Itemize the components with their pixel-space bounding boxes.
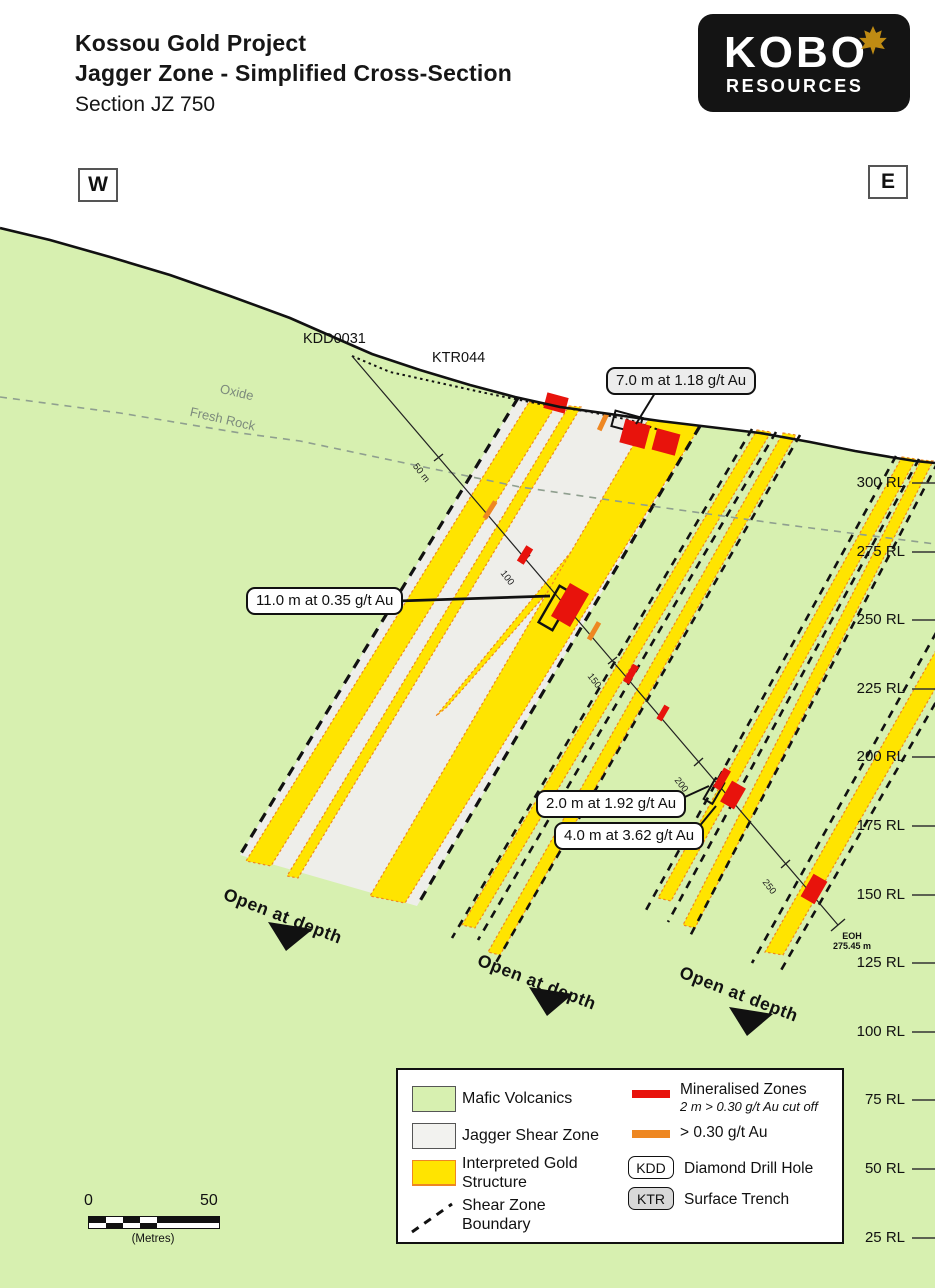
legend-swatch-shear	[412, 1123, 456, 1149]
rl-label: 50 RL	[835, 1160, 905, 1177]
legend-label: Surface Trench	[684, 1190, 789, 1209]
legend-label: > 0.30 g/t Au	[680, 1123, 767, 1142]
legend-dashed-line-icon	[408, 1196, 458, 1238]
assay-callout-2m: 2.0 m at 1.92 g/t Au	[536, 790, 686, 818]
scale-bar-row	[89, 1223, 219, 1229]
kobo-resources-logo: KOBO RESOURCES	[698, 14, 910, 112]
rl-label: 150 RL	[835, 886, 905, 903]
legend-orange-bar	[632, 1130, 670, 1138]
section-label: Section JZ 750	[75, 93, 215, 117]
kdd-badge: KDD	[628, 1156, 674, 1179]
legend-swatch-gold	[412, 1160, 456, 1186]
legend-red-bar	[632, 1090, 670, 1098]
legend-label: Shear Zone Boundary	[462, 1196, 546, 1234]
legend-label: Mineralised Zones	[680, 1080, 807, 1099]
scale-unit-label: (Metres)	[108, 1233, 198, 1245]
legend-label: Interpreted Gold Structure	[462, 1154, 578, 1192]
compass-east-box: E	[868, 165, 908, 199]
maple-leaf-icon	[858, 26, 888, 56]
legend: Mafic Volcanics Jagger Shear Zone Interp…	[396, 1068, 844, 1244]
legend-label: Jagger Shear Zone	[462, 1126, 599, 1145]
logo-subtitle-text: RESOURCES	[726, 76, 863, 97]
legend-swatch-mafic	[412, 1086, 456, 1112]
eoh-line2: 275.45 m	[820, 941, 884, 951]
scale-end-label: 50	[200, 1192, 218, 1210]
rl-label: 100 RL	[835, 1023, 905, 1040]
ktr-badge: KTR	[628, 1187, 674, 1210]
eoh-label: EOH 275.45 m	[820, 931, 884, 951]
legend-label: Diamond Drill Hole	[684, 1159, 813, 1178]
rl-label: 200 RL	[835, 748, 905, 765]
page-title: Kossou Gold Project	[75, 30, 306, 57]
legend-label-line: Interpreted Gold	[462, 1154, 578, 1173]
compass-west-box: W	[78, 168, 118, 202]
rl-label: 300 RL	[835, 474, 905, 491]
rl-label: 250 RL	[835, 611, 905, 628]
legend-label-line: Boundary	[462, 1215, 546, 1234]
legend-label-line: Structure	[462, 1173, 578, 1192]
rl-label: 175 RL	[835, 817, 905, 834]
drillhole-label: KDD0031	[303, 331, 366, 347]
assay-callout-7m: 7.0 m at 1.18 g/t Au	[606, 367, 756, 395]
legend-sublabel: 2 m > 0.30 g/t Au cut off	[680, 1099, 818, 1114]
assay-callout-11m: 11.0 m at 0.35 g/t Au	[246, 587, 403, 615]
scale-bar: 0 50 (Metres)	[88, 1192, 228, 1252]
eoh-line1: EOH	[820, 931, 884, 941]
legend-label-line: Shear Zone	[462, 1196, 546, 1215]
rl-label: 125 RL	[835, 954, 905, 971]
rl-label: 75 RL	[835, 1091, 905, 1108]
scale-bar-graphic	[88, 1216, 220, 1229]
rl-label: 275 RL	[835, 543, 905, 560]
rl-label: 225 RL	[835, 680, 905, 697]
assay-callout-4m: 4.0 m at 3.62 g/t Au	[554, 822, 704, 850]
page-subtitle: Jagger Zone - Simplified Cross-Section	[75, 60, 512, 87]
legend-label: Mafic Volcanics	[462, 1089, 572, 1108]
logo-brand-text: KOBO	[724, 28, 868, 78]
scale-start-label: 0	[84, 1192, 93, 1210]
cross-section-page: Kossou Gold Project Jagger Zone - Simpli…	[0, 0, 935, 1288]
rl-label: 25 RL	[835, 1229, 905, 1246]
trench-label: KTR044	[432, 350, 485, 366]
